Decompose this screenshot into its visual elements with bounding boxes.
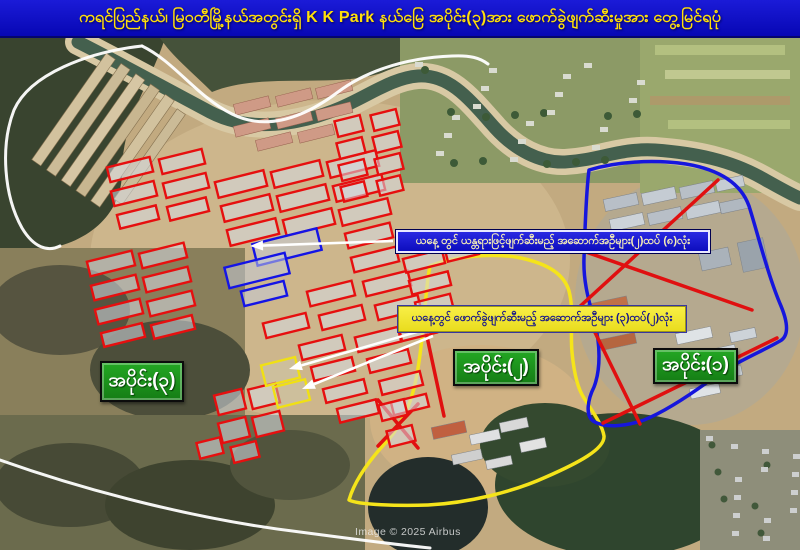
blue-callout-banner: ယနေ့ တွင် ယန္တရားဖြင့်ဖျက်ဆီးမည့် အဆောက်… xyxy=(396,230,710,253)
satellite-map xyxy=(0,0,800,550)
section-label-1: အပိုင်း(၁) xyxy=(653,348,738,384)
title-bar: ကရင်ပြည်နယ်၊ မြဝတီမြို့နယ်အတွင်းရှိ K K … xyxy=(0,0,800,38)
imagery-credit: Image © 2025 Airbus xyxy=(355,526,461,538)
annotated-satellite-map-screenshot: ကရင်ပြည်နယ်၊ မြဝတီမြို့နယ်အတွင်းရှိ K K … xyxy=(0,0,800,550)
section-label-2-text: အပိုင်း(၂) xyxy=(463,354,529,382)
yellow-callout-banner: ယနေ့တွင် ဖောက်ခွဲဖျက်ဆီးမည့် အဆောက်အဦမျာ… xyxy=(398,306,686,332)
yellow-callout-text: ယနေ့တွင် ဖောက်ခွဲဖျက်ဆီးမည့် အဆောက်အဦမျာ… xyxy=(412,311,673,327)
section-label-2: အပိုင်း(၂) xyxy=(453,349,539,386)
blue-callout-text: ယနေ့ တွင် ယန္တရားဖြင့်ဖျက်ဆီးမည့် အဆောက်… xyxy=(416,234,690,250)
title-text: ကရင်ပြည်နယ်၊ မြဝတီမြို့နယ်အတွင်းရှိ K K … xyxy=(79,6,721,30)
section-label-1-text: အပိုင်း(၁) xyxy=(662,352,729,380)
section-label-3: အပိုင်း(၃) xyxy=(100,361,184,402)
section-label-3-text: အပိုင်း(၃) xyxy=(109,368,176,396)
